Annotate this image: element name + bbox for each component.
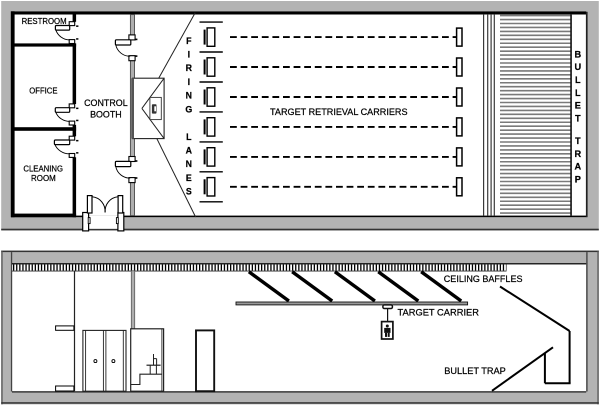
svg-text:BOOTH: BOOTH <box>90 109 122 119</box>
svg-text:CEILING BAFFLES: CEILING BAFFLES <box>444 274 523 284</box>
svg-text:OFFICE: OFFICE <box>29 86 57 96</box>
svg-text:T: T <box>575 136 581 146</box>
svg-text:R: R <box>574 149 581 159</box>
svg-text:RESTROOM: RESTROOM <box>22 17 67 26</box>
svg-text:TARGET CARRIER: TARGET CARRIER <box>398 307 480 317</box>
svg-text:I: I <box>188 50 190 60</box>
svg-text:T: T <box>575 113 581 123</box>
svg-text:L: L <box>575 75 581 85</box>
svg-text:TARGET RETRIEVAL CARRIERS: TARGET RETRIEVAL CARRIERS <box>270 107 408 117</box>
svg-text:U: U <box>574 62 581 72</box>
svg-text:B: B <box>574 49 581 59</box>
svg-text:A: A <box>574 162 581 172</box>
svg-text:BULLET TRAP: BULLET TRAP <box>444 366 506 376</box>
svg-text:A: A <box>186 146 193 156</box>
svg-text:F: F <box>186 36 192 46</box>
svg-text:R: R <box>186 63 193 73</box>
svg-text:S: S <box>186 187 192 197</box>
svg-text:I: I <box>188 77 190 87</box>
svg-text:L: L <box>575 88 581 98</box>
svg-text:E: E <box>186 173 192 183</box>
svg-text:N: N <box>186 91 192 101</box>
svg-text:CONTROL: CONTROL <box>84 98 128 108</box>
svg-text:ROOM: ROOM <box>31 173 56 183</box>
svg-text:G: G <box>185 104 192 114</box>
svg-text:N: N <box>186 159 192 169</box>
svg-text:E: E <box>575 101 581 111</box>
svg-text:L: L <box>186 132 192 142</box>
svg-text:P: P <box>575 174 581 184</box>
